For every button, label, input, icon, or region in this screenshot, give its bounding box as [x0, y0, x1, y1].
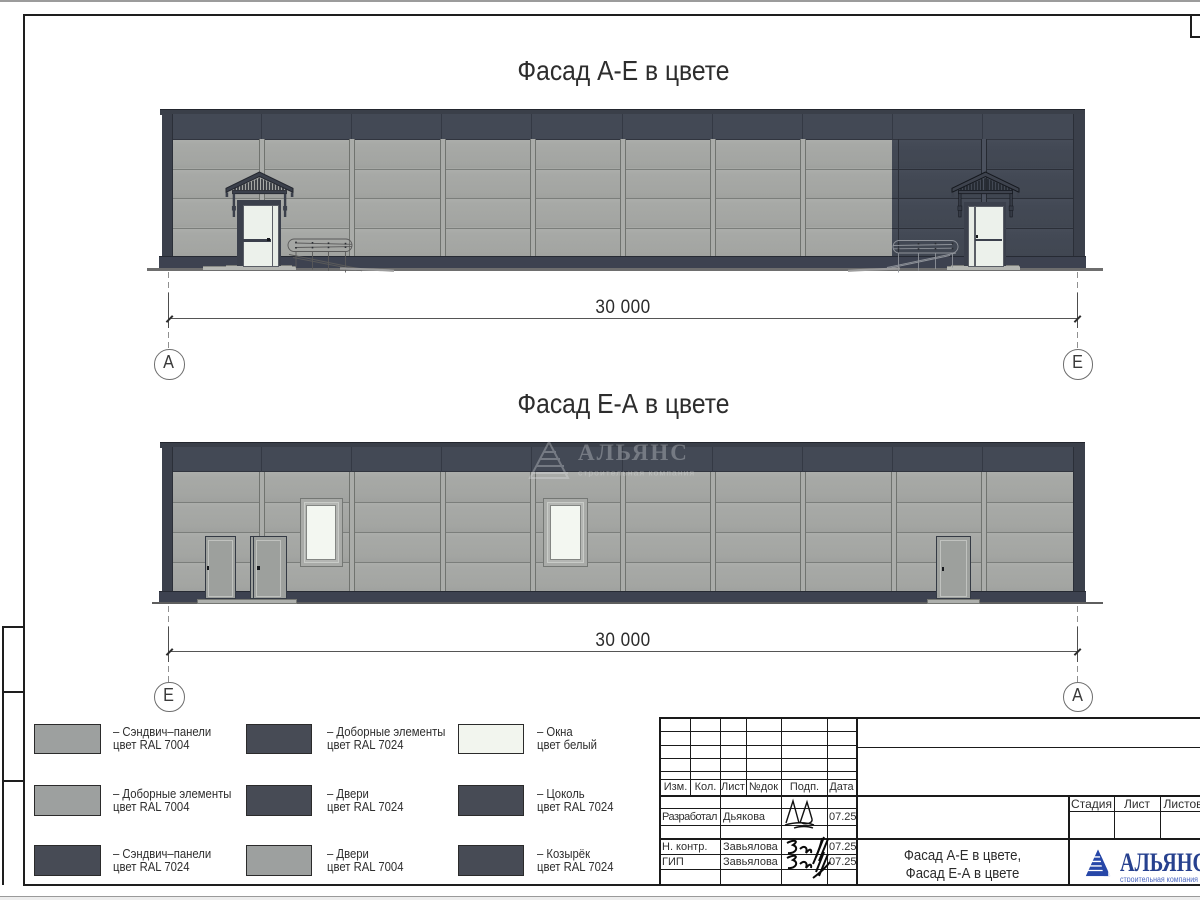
svg-text:АЛЬЯНС: АЛЬЯНС — [578, 440, 689, 465]
svg-text:строительная компания: строительная компания — [578, 468, 695, 478]
